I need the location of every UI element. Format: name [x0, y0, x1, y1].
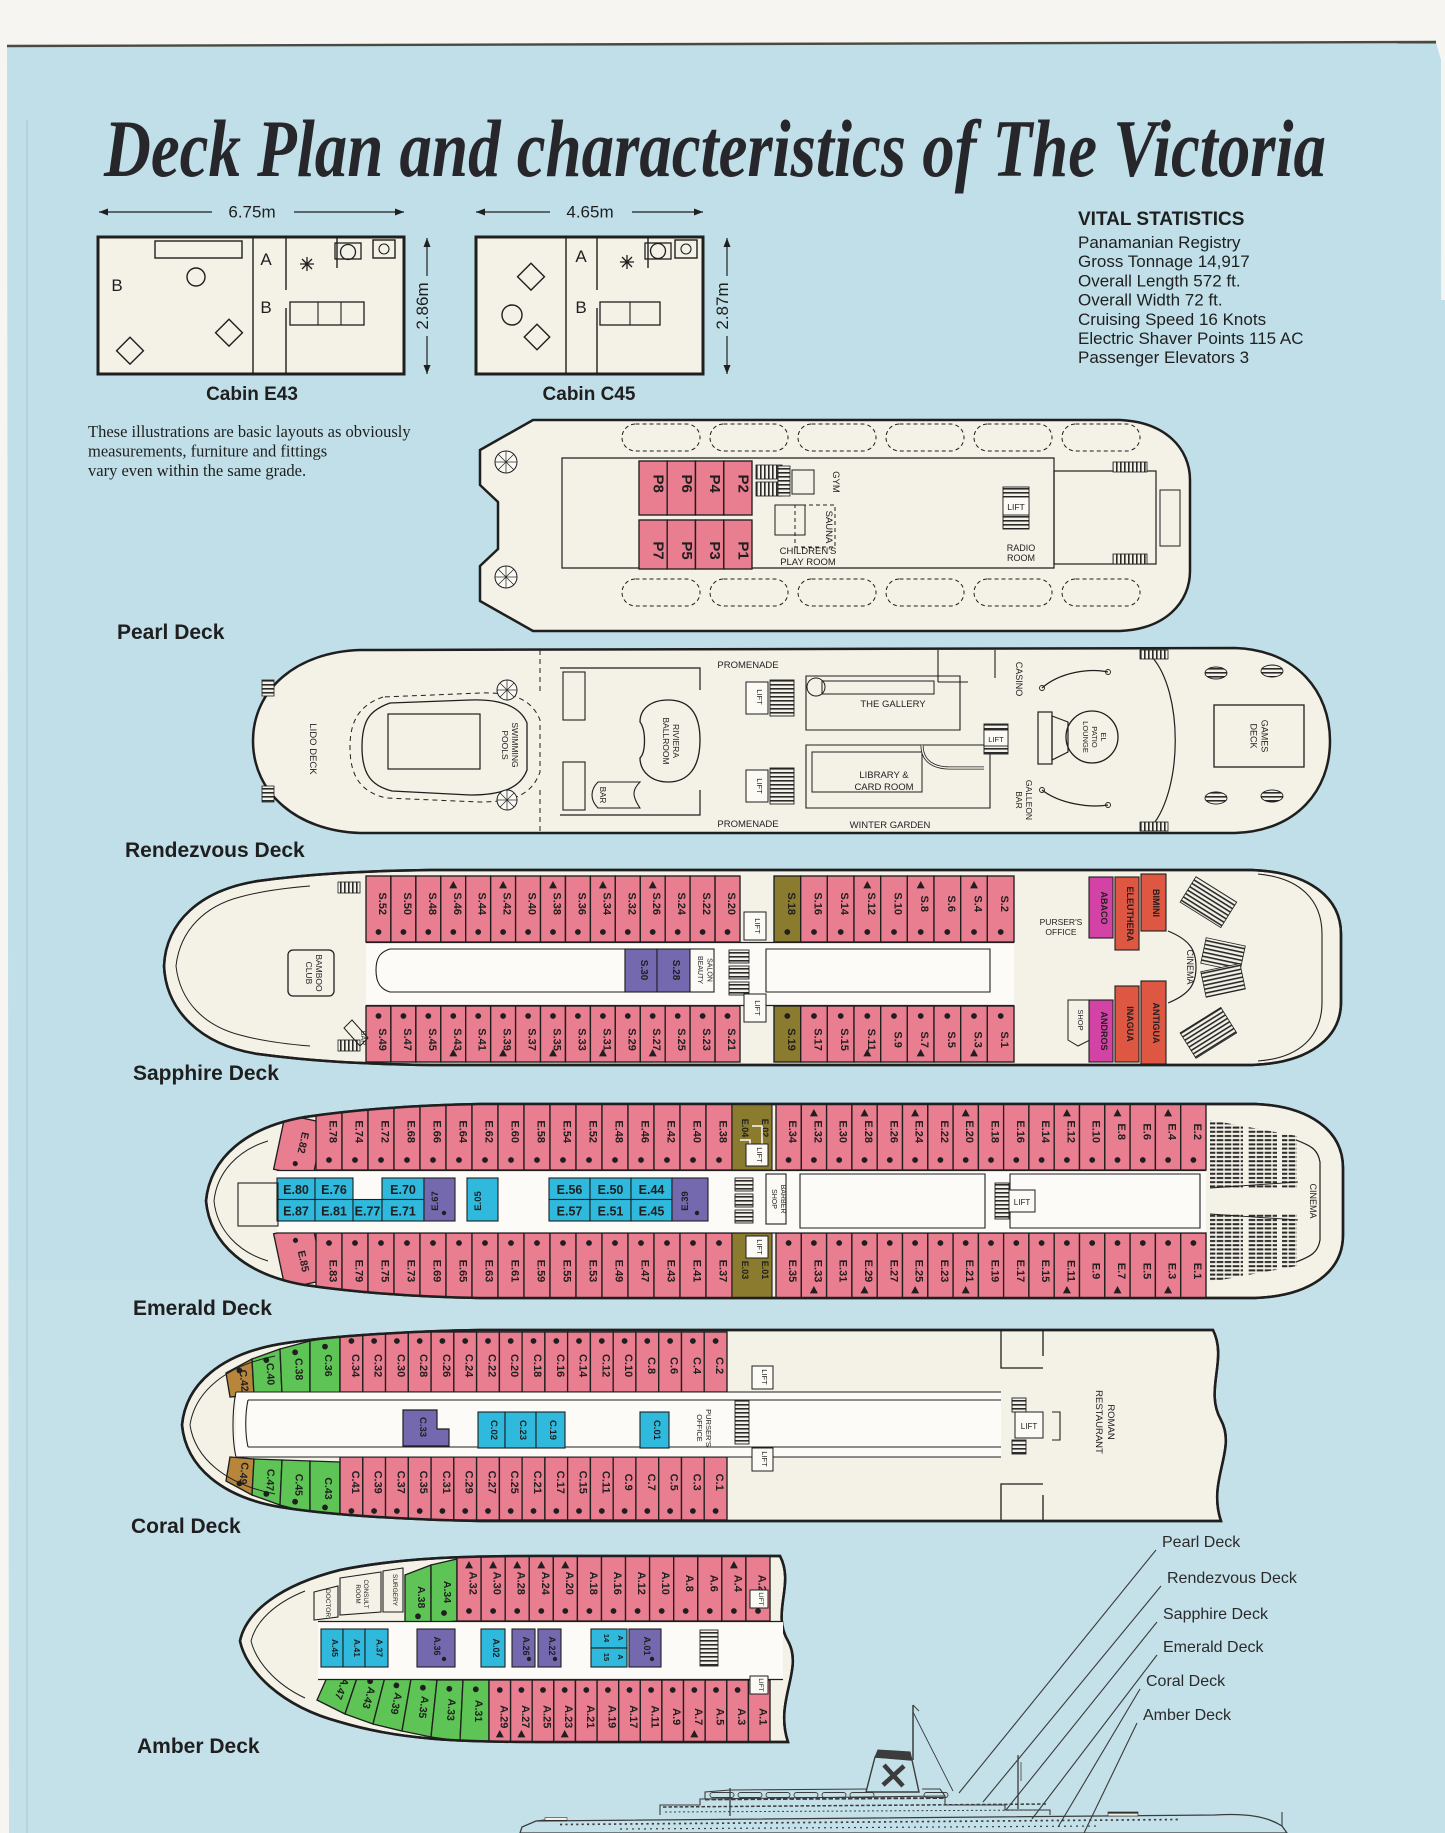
- svg-text:BAR: BAR: [598, 787, 607, 804]
- svg-text:E.03: E.03: [740, 1261, 750, 1280]
- svg-text:C.31: C.31: [440, 1471, 452, 1494]
- svg-text:E.37: E.37: [717, 1260, 729, 1283]
- svg-text:LIFT: LIFT: [755, 1239, 764, 1255]
- svg-text:E.52: E.52: [587, 1120, 599, 1143]
- svg-text:E.51: E.51: [598, 1205, 624, 1219]
- svg-text:E.35: E.35: [786, 1260, 798, 1283]
- svg-text:THE GALLERY: THE GALLERY: [860, 699, 926, 710]
- svg-text:A.37: A.37: [375, 1639, 385, 1657]
- svg-text:P1: P1: [734, 541, 751, 559]
- svg-text:ABACO: ABACO: [1099, 892, 1109, 925]
- svg-text:A.31: A.31: [472, 1700, 485, 1723]
- svg-text:A.12: A.12: [635, 1572, 647, 1595]
- svg-text:LIFT: LIFT: [988, 735, 1004, 744]
- svg-text:C.5: C.5: [668, 1474, 680, 1491]
- svg-text:E.16: E.16: [1014, 1120, 1026, 1143]
- svg-text:C.17: C.17: [554, 1471, 566, 1494]
- svg-text:S.33: S.33: [575, 1028, 587, 1051]
- svg-text:C.19: C.19: [547, 1420, 558, 1440]
- svg-text:B: B: [260, 298, 271, 317]
- svg-text:A.23: A.23: [562, 1705, 574, 1728]
- svg-text:CINEMA: CINEMA: [1185, 949, 1195, 984]
- svg-text:E.83: E.83: [327, 1260, 339, 1283]
- svg-text:E.01: E.01: [760, 1261, 770, 1280]
- svg-text:E.58: E.58: [535, 1120, 547, 1143]
- svg-text:C.3: C.3: [690, 1474, 702, 1491]
- svg-text:A.20: A.20: [563, 1572, 575, 1595]
- svg-text:S.38: S.38: [551, 892, 563, 915]
- svg-text:A.01: A.01: [642, 1636, 652, 1655]
- svg-text:PURSER'S: PURSER'S: [704, 1409, 713, 1447]
- svg-text:C.16: C.16: [554, 1354, 566, 1377]
- svg-text:A: A: [616, 1635, 625, 1641]
- svg-text:C.35: C.35: [417, 1471, 429, 1494]
- svg-text:BAR: BAR: [1014, 791, 1024, 808]
- svg-text:P6: P6: [678, 475, 695, 493]
- svg-text:S.34: S.34: [600, 892, 612, 916]
- svg-text:A.27: A.27: [519, 1705, 531, 1728]
- svg-text:C.22: C.22: [486, 1354, 498, 1377]
- svg-text:C.12: C.12: [599, 1354, 611, 1377]
- svg-text:E.40: E.40: [691, 1120, 703, 1143]
- svg-text:E.54: E.54: [561, 1120, 573, 1144]
- svg-text:E.4: E.4: [1166, 1123, 1178, 1140]
- svg-text:E.62: E.62: [483, 1120, 495, 1143]
- svg-text:C.4: C.4: [690, 1357, 702, 1375]
- svg-text:E.28: E.28: [862, 1120, 874, 1143]
- svg-text:POOLS: POOLS: [500, 730, 510, 760]
- svg-text:ROMAN: ROMAN: [1105, 1404, 1116, 1440]
- svg-text:C.41: C.41: [349, 1471, 361, 1494]
- svg-text:GAMES: GAMES: [1260, 720, 1270, 753]
- svg-text:E.74: E.74: [353, 1120, 365, 1144]
- svg-text:E.26: E.26: [887, 1120, 899, 1143]
- svg-text:C.20: C.20: [508, 1354, 520, 1377]
- svg-text:C.11: C.11: [599, 1471, 611, 1494]
- svg-text:P3: P3: [706, 541, 723, 559]
- svg-text:C.14: C.14: [577, 1354, 589, 1378]
- svg-text:S.14: S.14: [838, 892, 850, 916]
- svg-text:LIFT: LIFT: [760, 1369, 769, 1385]
- svg-text:PROMENADE: PROMENADE: [717, 660, 778, 671]
- svg-text:6.75m: 6.75m: [228, 203, 275, 222]
- svg-text:C.38: C.38: [292, 1358, 304, 1381]
- svg-text:A.36: A.36: [432, 1636, 442, 1655]
- svg-text:E.66: E.66: [431, 1120, 443, 1143]
- svg-text:E.19: E.19: [989, 1260, 1001, 1283]
- svg-text:LIDO DECK: LIDO DECK: [307, 723, 318, 775]
- svg-text:BAMBOO: BAMBOO: [314, 954, 324, 992]
- svg-text:A.22: A.22: [547, 1636, 557, 1655]
- svg-text:E.53: E.53: [587, 1260, 599, 1283]
- svg-text:S.35: S.35: [551, 1028, 563, 1051]
- svg-text:C.02: C.02: [488, 1420, 499, 1440]
- svg-text:LIFT: LIFT: [753, 918, 762, 934]
- svg-text:S.50: S.50: [401, 892, 413, 915]
- svg-text:A.5: A.5: [714, 1708, 726, 1725]
- svg-text:LIFT: LIFT: [757, 1592, 764, 1605]
- svg-text:E.30: E.30: [837, 1120, 849, 1143]
- svg-text:E.43: E.43: [665, 1260, 677, 1283]
- svg-text:C.39: C.39: [372, 1471, 384, 1494]
- svg-text:BAR: BAR: [359, 1031, 366, 1045]
- svg-text:S.28: S.28: [670, 960, 681, 981]
- svg-text:E.41: E.41: [691, 1260, 703, 1283]
- svg-text:C.29: C.29: [463, 1471, 475, 1494]
- svg-text:S.19: S.19: [785, 1028, 797, 1051]
- svg-text:E.64: E.64: [457, 1120, 469, 1144]
- svg-text:S.22: S.22: [700, 892, 712, 915]
- svg-text:A.30: A.30: [491, 1572, 503, 1595]
- svg-text:E.69: E.69: [431, 1260, 443, 1283]
- svg-text:S.2: S.2: [998, 895, 1010, 912]
- svg-text:S.48: S.48: [426, 892, 438, 915]
- svg-text:2.86m: 2.86m: [413, 282, 432, 329]
- svg-text:BALLROOM: BALLROOM: [661, 717, 671, 764]
- svg-text:SAUNA: SAUNA: [823, 511, 834, 544]
- svg-text:C.47: C.47: [263, 1469, 276, 1492]
- svg-text:LOUNGE: LOUNGE: [1081, 721, 1090, 753]
- svg-text:CASINO: CASINO: [1014, 662, 1024, 697]
- svg-text:measurements, furniture and fi: measurements, furniture and fittings: [88, 442, 327, 461]
- svg-text:A.3: A.3: [735, 1708, 747, 1725]
- svg-text:S.7: S.7: [918, 1031, 930, 1048]
- svg-text:Panamanian Registry: Panamanian Registry: [1078, 233, 1241, 252]
- svg-text:E.72: E.72: [379, 1120, 391, 1143]
- svg-text:S.8: S.8: [918, 895, 930, 912]
- svg-text:SWIMMING: SWIMMING: [510, 722, 520, 767]
- svg-text:A.26: A.26: [521, 1636, 531, 1655]
- svg-text:BEAUTY: BEAUTY: [696, 956, 703, 984]
- svg-text:GYM: GYM: [830, 471, 841, 493]
- svg-text:C.27: C.27: [486, 1471, 498, 1494]
- svg-text:C.7: C.7: [645, 1474, 657, 1491]
- svg-text:E.63: E.63: [483, 1260, 495, 1283]
- svg-text:BIMINI: BIMINI: [1151, 889, 1161, 917]
- svg-text:These illustrations are basic: These illustrations are basic layouts as…: [88, 422, 411, 441]
- svg-text:Gross Tonnage 14,917: Gross Tonnage 14,917: [1078, 252, 1250, 271]
- svg-text:E.29: E.29: [862, 1260, 874, 1283]
- svg-text:C.18: C.18: [531, 1354, 543, 1377]
- svg-text:B: B: [111, 276, 122, 295]
- svg-text:E.80: E.80: [283, 1183, 309, 1197]
- svg-text:S.42: S.42: [501, 892, 513, 915]
- svg-text:S.37: S.37: [526, 1028, 538, 1051]
- svg-text:E.76: E.76: [321, 1183, 347, 1197]
- svg-text:C.24: C.24: [463, 1354, 475, 1378]
- svg-text:E.61: E.61: [509, 1260, 521, 1283]
- svg-text:A.17: A.17: [627, 1705, 639, 1728]
- svg-text:Rendezvous Deck: Rendezvous Deck: [125, 839, 305, 862]
- svg-text:C.10: C.10: [622, 1354, 634, 1377]
- svg-text:E.22: E.22: [938, 1120, 950, 1143]
- svg-text:A.11: A.11: [649, 1705, 661, 1728]
- svg-text:A.34: A.34: [441, 1581, 453, 1603]
- svg-text:CHILDREN'S: CHILDREN'S: [780, 546, 837, 557]
- svg-text:E.59: E.59: [535, 1260, 547, 1283]
- svg-text:PROMENADE: PROMENADE: [717, 819, 778, 830]
- svg-text:A.45: A.45: [330, 1639, 340, 1657]
- svg-text:C.1: C.1: [713, 1474, 725, 1491]
- svg-text:E.24: E.24: [913, 1120, 925, 1144]
- svg-text:E.57: E.57: [557, 1205, 583, 1219]
- svg-text:SHOP: SHOP: [1076, 1009, 1085, 1030]
- svg-text:E.7: E.7: [1115, 1263, 1127, 1280]
- svg-text:S.26: S.26: [650, 892, 662, 915]
- svg-text:E.04: E.04: [740, 1119, 750, 1138]
- svg-text:A.8: A.8: [683, 1575, 695, 1592]
- svg-text:Pearl Deck: Pearl Deck: [1162, 1534, 1241, 1551]
- svg-text:E.71: E.71: [390, 1205, 416, 1219]
- svg-text:E.33: E.33: [811, 1260, 823, 1283]
- svg-text:E.9: E.9: [1090, 1263, 1102, 1280]
- svg-text:S.21: S.21: [725, 1028, 737, 1051]
- svg-text:A.19: A.19: [605, 1705, 617, 1728]
- svg-text:E.65: E.65: [457, 1260, 469, 1283]
- svg-text:S.29: S.29: [625, 1028, 637, 1051]
- svg-text:E.21: E.21: [963, 1260, 975, 1283]
- svg-text:E.56: E.56: [557, 1183, 583, 1197]
- svg-text:S.45: S.45: [426, 1028, 438, 1051]
- svg-text:S.47: S.47: [401, 1028, 413, 1051]
- svg-text:EL: EL: [1099, 732, 1108, 741]
- svg-text:C.26: C.26: [440, 1354, 452, 1377]
- svg-text:LIFT: LIFT: [755, 1147, 764, 1163]
- svg-text:Deck Plan and characteristics: Deck Plan and characteristics of The Vic…: [103, 103, 1326, 194]
- svg-text:A.25: A.25: [541, 1705, 553, 1728]
- svg-text:S.10: S.10: [892, 892, 904, 915]
- svg-text:vary even within the same grad: vary even within the same grade.: [88, 461, 306, 480]
- svg-text:LIFT: LIFT: [1007, 502, 1024, 512]
- svg-text:P7: P7: [650, 541, 667, 559]
- svg-text:E.60: E.60: [509, 1120, 521, 1143]
- svg-text:E.10: E.10: [1090, 1120, 1102, 1143]
- svg-text:A.21: A.21: [584, 1705, 596, 1728]
- svg-text:C.33: C.33: [417, 1417, 428, 1437]
- svg-text:DECK: DECK: [1249, 723, 1259, 748]
- svg-text:S.46: S.46: [451, 892, 463, 915]
- svg-text:E.23: E.23: [938, 1260, 950, 1283]
- svg-text:A.1: A.1: [757, 1708, 769, 1725]
- svg-text:C.21: C.21: [531, 1471, 543, 1494]
- svg-text:S.24: S.24: [675, 892, 687, 916]
- svg-text:C.30: C.30: [394, 1354, 406, 1377]
- svg-text:E.55: E.55: [561, 1260, 573, 1283]
- svg-text:E.12: E.12: [1064, 1120, 1076, 1143]
- svg-text:Overall Width 72 ft.: Overall Width 72 ft.: [1078, 291, 1223, 310]
- svg-text:E.32: E.32: [811, 1120, 823, 1143]
- svg-text:E.79: E.79: [353, 1260, 365, 1283]
- svg-text:A.18: A.18: [587, 1572, 599, 1595]
- svg-text:S.43: S.43: [451, 1028, 463, 1051]
- svg-text:RADIO: RADIO: [1007, 543, 1036, 553]
- svg-text:CLUB: CLUB: [304, 962, 314, 985]
- svg-text:E.15: E.15: [1039, 1260, 1051, 1283]
- svg-text:C.8: C.8: [645, 1357, 657, 1374]
- svg-text:E.67: E.67: [430, 1191, 441, 1211]
- svg-text:SURGERY: SURGERY: [391, 1574, 398, 1607]
- svg-text:S.36: S.36: [575, 892, 587, 915]
- svg-text:ELEUTHERA: ELEUTHERA: [1125, 886, 1135, 942]
- svg-text:A.29: A.29: [497, 1705, 509, 1728]
- svg-text:B: B: [575, 298, 586, 317]
- svg-text:P5: P5: [678, 541, 695, 559]
- svg-text:A: A: [575, 247, 587, 266]
- svg-text:Passenger Elevators 3: Passenger Elevators 3: [1078, 348, 1249, 367]
- svg-text:S.20: S.20: [725, 892, 737, 915]
- svg-text:S.44: S.44: [476, 892, 488, 916]
- svg-text:P8: P8: [650, 475, 667, 493]
- svg-text:A.41: A.41: [352, 1639, 362, 1657]
- svg-text:A: A: [260, 250, 272, 269]
- svg-text:S.25: S.25: [675, 1028, 687, 1051]
- svg-text:Electric Shaver Points 115 AC: Electric Shaver Points 115 AC: [1078, 329, 1304, 348]
- svg-text:14: 14: [602, 1634, 611, 1643]
- svg-text:A.4: A.4: [731, 1575, 743, 1593]
- svg-text:WINTER GARDEN: WINTER GARDEN: [850, 820, 931, 831]
- svg-text:P4: P4: [706, 475, 723, 494]
- svg-text:Pearl Deck: Pearl Deck: [117, 621, 225, 644]
- svg-text:INAGUA: INAGUA: [1125, 1006, 1135, 1042]
- svg-text:BARBER: BARBER: [779, 1185, 786, 1214]
- svg-text:E.46: E.46: [639, 1120, 651, 1143]
- svg-text:E.14: E.14: [1039, 1120, 1051, 1144]
- svg-text:E.42: E.42: [665, 1120, 677, 1143]
- svg-text:E.20: E.20: [963, 1120, 975, 1143]
- svg-text:S.16: S.16: [812, 892, 824, 915]
- svg-text:C.45: C.45: [292, 1474, 304, 1497]
- svg-text:C.23: C.23: [517, 1420, 528, 1440]
- svg-text:LIFT: LIFT: [755, 689, 764, 705]
- svg-text:C.37: C.37: [394, 1471, 406, 1494]
- svg-text:ANDROS: ANDROS: [1099, 1011, 1109, 1050]
- svg-text:E.73: E.73: [405, 1260, 417, 1283]
- svg-text:DOCTOR: DOCTOR: [324, 1589, 331, 1617]
- svg-text:15: 15: [602, 1653, 611, 1661]
- svg-text:C.15: C.15: [577, 1471, 589, 1494]
- svg-text:A.7: A.7: [692, 1708, 704, 1725]
- svg-text:OFFICE: OFFICE: [1045, 927, 1076, 937]
- svg-text:Emerald Deck: Emerald Deck: [1163, 1639, 1264, 1656]
- svg-text:A.28: A.28: [515, 1572, 527, 1595]
- svg-text:E.77: E.77: [355, 1205, 381, 1219]
- svg-text:A.38: A.38: [415, 1586, 427, 1608]
- svg-text:S.41: S.41: [476, 1028, 488, 1051]
- svg-text:A.32: A.32: [467, 1572, 479, 1595]
- svg-text:E.3: E.3: [1166, 1263, 1178, 1280]
- svg-text:RIVIERA: RIVIERA: [671, 724, 681, 758]
- svg-text:S.27: S.27: [650, 1028, 662, 1051]
- svg-text:Sapphire Deck: Sapphire Deck: [1163, 1606, 1269, 1623]
- svg-text:LIFT: LIFT: [1014, 1198, 1031, 1207]
- svg-text:CINEMA: CINEMA: [1308, 1183, 1318, 1218]
- svg-text:E.17: E.17: [1014, 1260, 1026, 1283]
- svg-text:PLAY ROOM: PLAY ROOM: [780, 557, 836, 568]
- svg-text:C.28: C.28: [417, 1354, 429, 1377]
- svg-text:C.6: C.6: [668, 1357, 680, 1374]
- svg-text:Sapphire Deck: Sapphire Deck: [133, 1062, 279, 1085]
- svg-text:E.47: E.47: [639, 1260, 651, 1283]
- svg-text:A.24: A.24: [539, 1572, 551, 1596]
- svg-text:Amber Deck: Amber Deck: [1143, 1707, 1232, 1724]
- svg-text:E.48: E.48: [613, 1120, 625, 1143]
- svg-text:RESTAURANT: RESTAURANT: [1093, 1390, 1104, 1454]
- svg-text:E.1: E.1: [1191, 1263, 1203, 1280]
- svg-text:E.78: E.78: [327, 1120, 339, 1143]
- svg-text:A.10: A.10: [659, 1572, 671, 1595]
- svg-text:LIFT: LIFT: [757, 1678, 764, 1691]
- svg-text:C.25: C.25: [508, 1471, 520, 1494]
- svg-text:LIFT: LIFT: [755, 778, 764, 794]
- svg-text:E.45: E.45: [639, 1205, 665, 1219]
- svg-text:C.2: C.2: [713, 1357, 725, 1374]
- svg-text:C.01: C.01: [651, 1420, 662, 1441]
- svg-text:ROOM: ROOM: [1007, 553, 1035, 563]
- svg-text:Emerald Deck: Emerald Deck: [133, 1297, 272, 1320]
- svg-text:SALON: SALON: [706, 958, 713, 982]
- svg-text:VITAL STATISTICS: VITAL STATISTICS: [1078, 209, 1244, 230]
- svg-text:S.30: S.30: [638, 960, 649, 981]
- svg-text:E.18: E.18: [989, 1120, 1001, 1143]
- svg-text:S.15: S.15: [838, 1028, 850, 1051]
- svg-text:2.87m: 2.87m: [713, 282, 732, 329]
- svg-text:A: A: [616, 1654, 625, 1660]
- svg-text:S.40: S.40: [526, 892, 538, 915]
- svg-text:E.50: E.50: [598, 1183, 624, 1197]
- svg-text:ROOM: ROOM: [354, 1584, 361, 1603]
- svg-text:Cabin C45: Cabin C45: [543, 384, 636, 405]
- svg-text:E.31: E.31: [837, 1260, 849, 1283]
- svg-text:E.5: E.5: [1140, 1263, 1152, 1280]
- svg-text:A.2: A.2: [756, 1575, 768, 1592]
- svg-text:A.33: A.33: [444, 1698, 458, 1721]
- svg-text:E.87: E.87: [283, 1205, 309, 1219]
- svg-text:S.5: S.5: [945, 1031, 957, 1048]
- svg-text:S.1: S.1: [998, 1031, 1010, 1048]
- svg-text:E.2: E.2: [1191, 1123, 1203, 1140]
- svg-text:E.6: E.6: [1140, 1123, 1152, 1140]
- svg-text:E.38: E.38: [717, 1120, 729, 1143]
- svg-text:GALLEON: GALLEON: [1024, 780, 1034, 820]
- svg-text:PATIO: PATIO: [1090, 726, 1099, 748]
- svg-text:S.3: S.3: [972, 1031, 984, 1048]
- svg-text:S.39: S.39: [501, 1028, 513, 1051]
- svg-text:ANTIGUA: ANTIGUA: [1151, 1003, 1161, 1044]
- svg-text:Amber Deck: Amber Deck: [137, 1735, 260, 1758]
- svg-text:E.25: E.25: [913, 1260, 925, 1283]
- svg-text:E.34: E.34: [786, 1120, 798, 1144]
- svg-text:S.31: S.31: [600, 1028, 612, 1051]
- svg-text:E.70: E.70: [390, 1183, 416, 1197]
- svg-text:E.75: E.75: [379, 1260, 391, 1283]
- svg-text:LIFT: LIFT: [753, 1000, 762, 1016]
- svg-text:LIFT: LIFT: [1021, 1422, 1038, 1431]
- svg-text:C.9: C.9: [622, 1474, 634, 1491]
- svg-text:E.68: E.68: [405, 1120, 417, 1143]
- svg-text:C.32: C.32: [372, 1354, 384, 1377]
- svg-text:P2: P2: [734, 475, 751, 493]
- svg-text:S.9: S.9: [892, 1031, 904, 1048]
- svg-text:E.8: E.8: [1115, 1123, 1127, 1140]
- svg-text:Coral Deck: Coral Deck: [131, 1515, 241, 1538]
- svg-text:C.36: C.36: [322, 1354, 334, 1376]
- svg-text:SHOP: SHOP: [770, 1189, 777, 1209]
- svg-text:E.39: E.39: [680, 1191, 691, 1211]
- svg-text:A.02: A.02: [491, 1638, 501, 1657]
- svg-text:E.49: E.49: [613, 1260, 625, 1283]
- svg-text:A.16: A.16: [611, 1572, 623, 1595]
- svg-text:C.40: C.40: [263, 1363, 276, 1386]
